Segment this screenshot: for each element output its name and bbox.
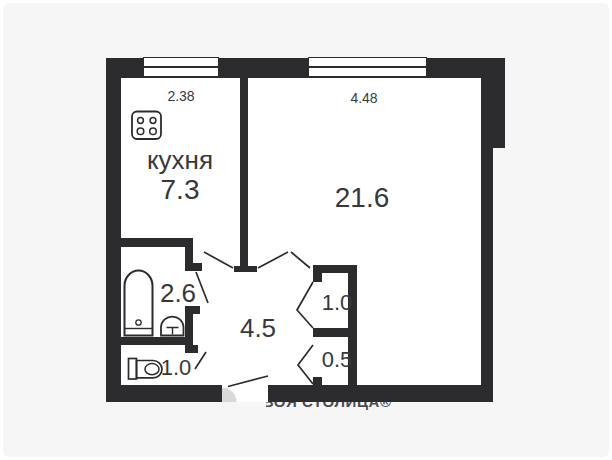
wall-bottom [106,385,493,402]
wall-bathroom-right-upper [185,247,193,263]
wall-closet-middle [313,328,357,337]
window-symbol-kitchen [143,57,219,77]
area-label-toilet: 1.0 [161,355,192,381]
area-label-living: 21.6 [335,182,390,214]
wall-bathroom-right-lower [185,314,193,337]
area-label-closet-upper: 1.0 [322,290,353,316]
wall-bathroom-top [121,238,193,247]
wall-toilet-right-jamb [185,345,198,353]
floor-plan-canvas: ТВОЯ СТОЛИЦА® [0,0,612,460]
wall-divider-end-cap [234,266,257,272]
area-label-bathroom: 2.6 [160,278,196,309]
window-pane-line [144,66,218,68]
room-label-kitchen: кухня [147,145,213,176]
entrance-door-opening [222,385,268,402]
area-label-kitchen: 7.3 [161,174,200,206]
wall-right-lower [481,148,493,402]
window-pane-line [309,66,426,68]
area-label-hallway: 4.5 [240,313,276,344]
wall-right-upper [481,58,505,148]
dimension-living-width: 4.48 [350,90,377,106]
wall-closet-jamb-upper [313,273,322,282]
area-label-closet-lower: 0.5 [322,347,353,373]
wall-bathroom-door-jamb-top [185,263,202,271]
wall-closet-jamb-lower [313,377,322,385]
wall-kitchen-living-divider [240,78,248,266]
window-symbol-living [308,57,427,77]
dimension-kitchen-width: 2.38 [167,88,194,104]
wall-bathroom-toilet-divider [121,337,193,345]
wall-left [106,58,121,402]
